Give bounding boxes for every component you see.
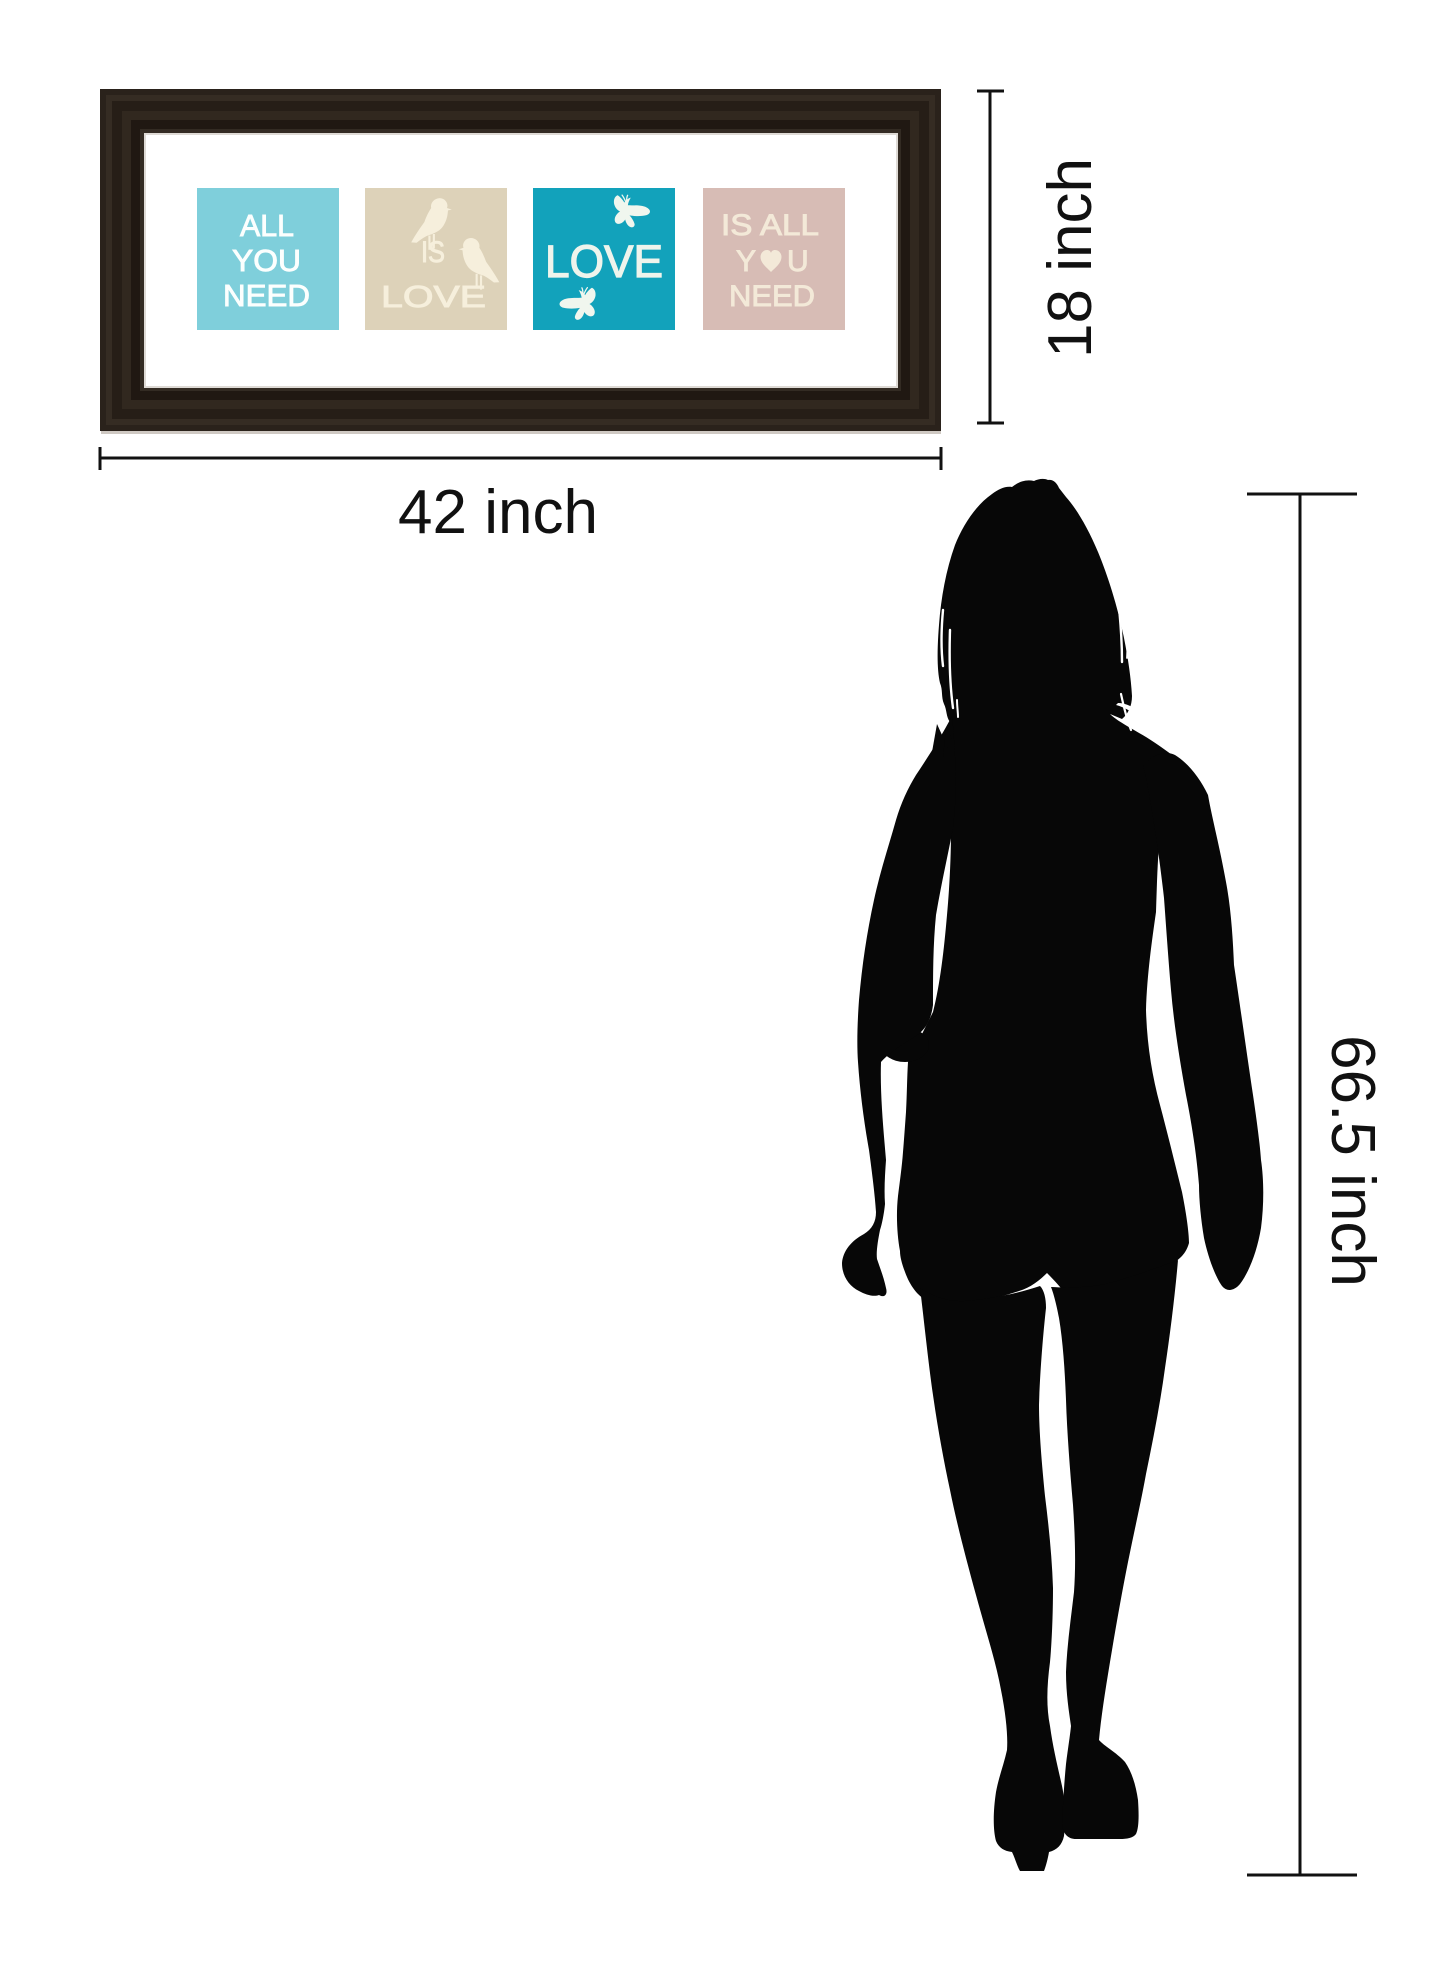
svg-text:18 inch: 18 inch (1036, 158, 1105, 358)
svg-text:LOVE: LOVE (545, 236, 663, 287)
svg-text:42 inch: 42 inch (398, 478, 598, 547)
svg-text:Y: Y (736, 245, 756, 278)
svg-text:YOU: YOU (232, 243, 301, 278)
svg-text:66.5 inch: 66.5 inch (1318, 1035, 1387, 1287)
svg-text:NEED: NEED (729, 280, 815, 313)
svg-text:LOVE: LOVE (381, 279, 486, 314)
svg-text:U: U (787, 245, 809, 278)
svg-text:NEED: NEED (223, 278, 310, 313)
svg-text:IS ALL: IS ALL (721, 209, 819, 242)
svg-text:ALL: ALL (240, 208, 294, 243)
